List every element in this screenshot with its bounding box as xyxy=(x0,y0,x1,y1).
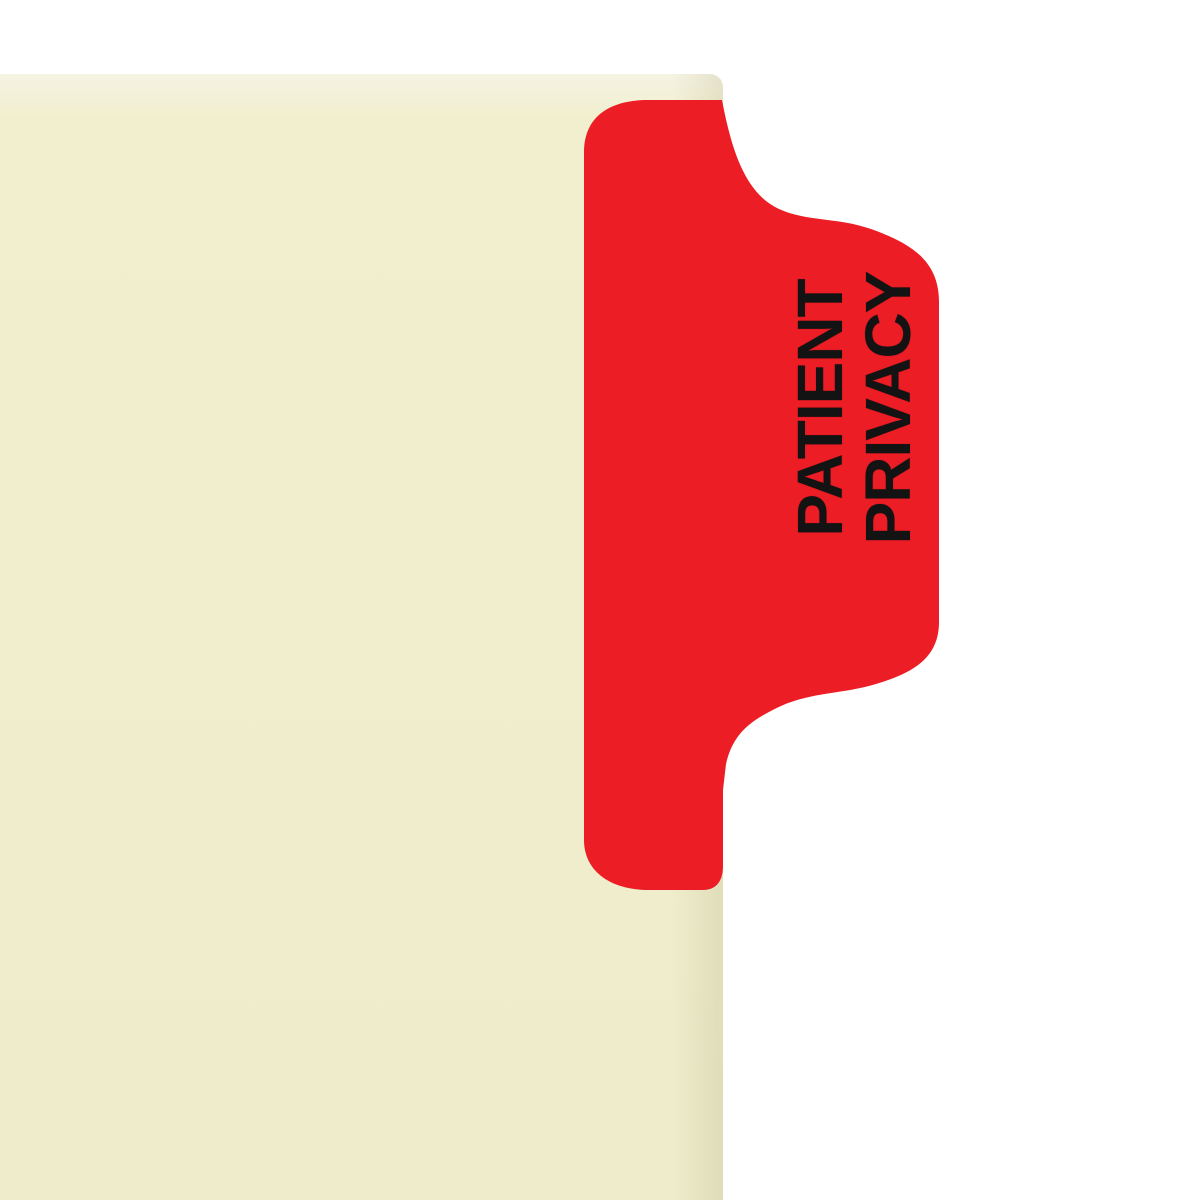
tab-label-line2: PRIVACY xyxy=(854,272,922,545)
red-side-tab xyxy=(0,0,1200,1200)
tab-label: PATIENT PRIVACY xyxy=(786,272,922,545)
tab-label-line1: PATIENT xyxy=(786,272,854,545)
product-image-canvas: PATIENT PRIVACY xyxy=(0,0,1200,1200)
